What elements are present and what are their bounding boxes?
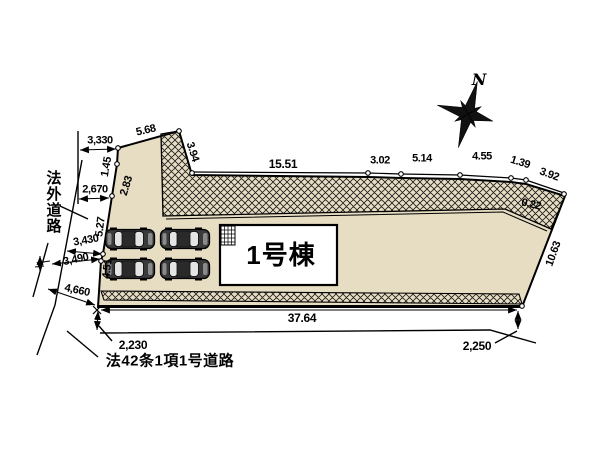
dim-2670: 2,670 — [82, 185, 108, 196]
building-porch-grid — [221, 226, 235, 245]
dim-15-51: 15.51 — [269, 158, 298, 170]
north-label: N — [472, 72, 487, 88]
building-label: 1号棟 — [246, 242, 315, 268]
site-plan: N 3,330 5.68 1.45 2,670 2.83 3.94 15.51 … — [0, 0, 600, 460]
car-4 — [161, 258, 210, 281]
dim-37-64: 37.64 — [288, 312, 317, 324]
dim-3330: 3,330 — [87, 136, 113, 147]
dim-3-02: 3.02 — [370, 156, 390, 167]
dim-4-55: 4.55 — [472, 152, 492, 163]
dim-2230: 2,230 — [119, 339, 148, 351]
car-1 — [106, 228, 155, 251]
road-bottom-label: 法42条1項1号道路 — [106, 354, 234, 369]
site-plan-drawing — [0, 0, 600, 460]
car-2 — [161, 228, 210, 251]
compass-rose-icon — [428, 72, 503, 154]
road-left-label: 法外道路 — [46, 170, 61, 234]
dim-2250: 2,250 — [463, 340, 492, 352]
dim-5-14: 5.14 — [412, 154, 432, 165]
